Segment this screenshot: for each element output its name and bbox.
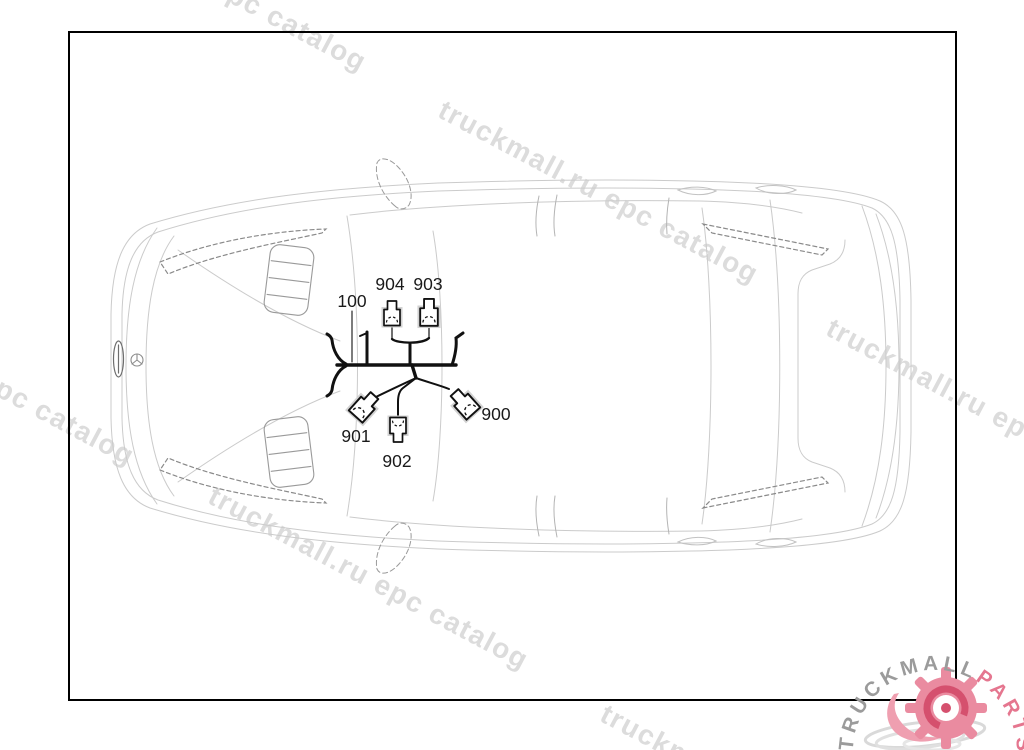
front-bumper-line (126, 228, 157, 504)
branch-901 (376, 378, 416, 397)
hood-crease-lower (178, 391, 340, 482)
harness-lower-node (412, 365, 416, 378)
connector-900-icon[interactable] (446, 385, 482, 421)
roof-rear-edge (702, 208, 711, 524)
headlight-lower (160, 458, 326, 503)
branch-900 (416, 378, 449, 389)
car-top-view-drawing (111, 159, 911, 573)
c-pillar-seam-upper (667, 198, 669, 234)
car-body-inner-outline (122, 188, 900, 544)
part-label-904[interactable]: 904 (375, 274, 404, 294)
hood-vent-lower (263, 416, 315, 489)
connector-903-icon[interactable] (419, 299, 440, 327)
part-label-900[interactable]: 900 (481, 404, 510, 424)
hood-vent-upper (263, 244, 315, 317)
taillight-upper (703, 224, 828, 255)
b-pillar-seam-lower (536, 496, 557, 537)
rear-bumper-inner-line (876, 214, 899, 518)
door-handle (678, 187, 716, 195)
c-pillar-seam-lower (667, 498, 669, 534)
connector-902-icon[interactable] (389, 417, 408, 443)
side-mirror-upper (376, 159, 411, 209)
front-star-emblem (131, 354, 143, 366)
epc-illustration-page: truckmall.ru epc catalog truckmall.ru ep… (0, 0, 1024, 750)
part-label-901[interactable]: 901 (341, 426, 370, 446)
connector-901-icon[interactable] (347, 388, 383, 424)
branch-902 (398, 378, 416, 417)
headlight-upper (160, 229, 326, 274)
part-label-902[interactable]: 902 (382, 451, 411, 471)
connector-904-icon[interactable] (383, 301, 402, 327)
car-body-outline (111, 180, 911, 552)
harness-upper-arms (392, 338, 429, 343)
window-line-lower (350, 517, 802, 531)
door-handle (678, 537, 716, 545)
part-label-100[interactable]: 100 (337, 291, 366, 311)
harness-right-branch (452, 333, 463, 365)
hood-crease-upper (178, 250, 340, 341)
front-bumper-inner-line (146, 236, 174, 496)
taillight-lower (703, 477, 828, 508)
illustration-frame-border (69, 32, 956, 700)
harness-left-branch-upper (327, 334, 346, 364)
b-pillar-seam-upper (536, 195, 557, 236)
truckmall-parts-logo: TRUCKMALLPARTS (835, 652, 1024, 750)
rear-bumper-line (862, 206, 886, 526)
window-line-upper (350, 201, 802, 215)
harness-left-branch-lower (327, 366, 346, 396)
trunk-lid-seam (798, 240, 845, 492)
side-mirror-lower (376, 523, 411, 573)
rear-window-edge (770, 200, 780, 532)
part-label-903[interactable]: 903 (413, 274, 442, 294)
